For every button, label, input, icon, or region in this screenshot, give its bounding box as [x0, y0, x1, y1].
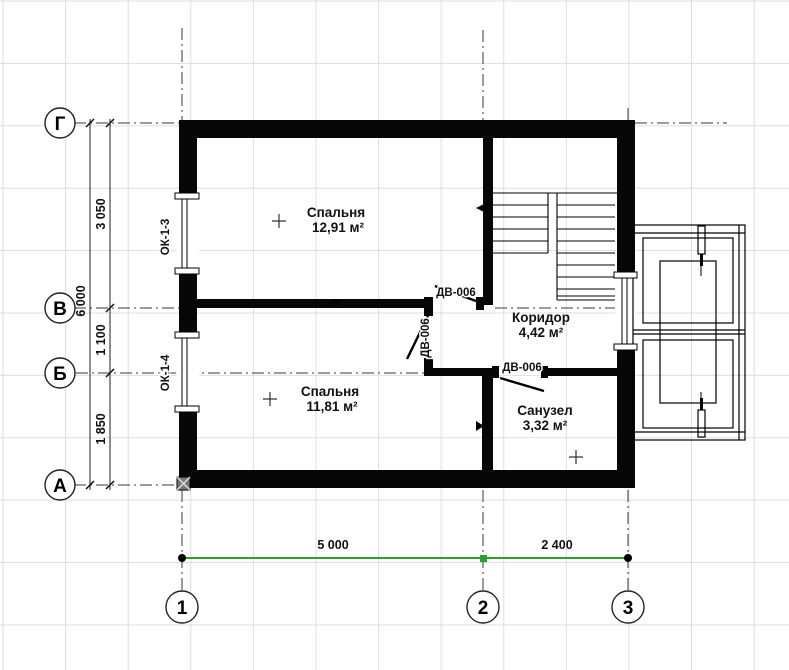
room-label-bedroom-2[interactable]: Спальня 11,81 м²: [301, 384, 359, 414]
window-gap-1: [177, 193, 199, 274]
room-name[interactable]: Спальня: [307, 205, 365, 220]
dim-bottom-seg-1[interactable]: 5 000: [317, 538, 348, 552]
room-label-corridor[interactable]: Коридор 4,42 м²: [512, 310, 570, 340]
door-tag-bedroom1[interactable]: ДВ-006: [436, 287, 476, 299]
door-tag-bathroom[interactable]: ДВ-006: [502, 362, 542, 374]
dim-grip[interactable]: [178, 554, 186, 562]
roof-window-bottom[interactable]: [643, 340, 733, 428]
door-tag-bedroom2[interactable]: ДВ-006: [420, 318, 432, 358]
dim-total-left[interactable]: 6 000: [74, 285, 88, 316]
bubble-row-a-label: А: [53, 476, 67, 497]
room-area[interactable]: 4,42 м²: [519, 325, 564, 340]
staircase[interactable]: [476, 193, 617, 300]
room-area[interactable]: 12,91 м²: [312, 220, 365, 235]
wall-north[interactable]: [179, 120, 635, 138]
bubble-row-b-label: Б: [53, 364, 67, 385]
bubble-col-3-label: 3: [623, 598, 634, 619]
dim-left-seg-1[interactable]: 3 050: [94, 198, 108, 229]
bottom-dimension-selected[interactable]: 5 000 2 400: [178, 538, 632, 562]
bubble-col-2-label: 2: [478, 598, 489, 619]
dim-grip[interactable]: [624, 554, 632, 562]
window-tag-ok-1-3[interactable]: ОК-1-3: [160, 219, 172, 255]
floor-plan-svg: 6 000 3 050 1 100 1 850: [0, 0, 789, 670]
room-name[interactable]: Коридор: [512, 310, 570, 325]
room-area[interactable]: 3,32 м²: [523, 418, 568, 433]
roof-window-top[interactable]: [643, 238, 733, 323]
corner-hatch-marker: [177, 477, 190, 490]
wall-corridor-south[interactable]: [424, 368, 498, 376]
wall-bathroom-north[interactable]: [546, 368, 617, 376]
drawing-canvas: 6 000 3 050 1 100 1 850: [0, 0, 789, 670]
bubble-col-1-label: 1: [177, 598, 188, 619]
bubble-row-g-label: Г: [55, 114, 66, 135]
room-label-bedroom-1[interactable]: Спальня 12,91 м²: [307, 205, 365, 235]
door-jamb: [424, 297, 433, 316]
wall-south[interactable]: [179, 470, 635, 488]
wall-west[interactable]: [179, 120, 197, 488]
door-jamb: [424, 358, 433, 368]
window-gap-2: [177, 332, 199, 412]
room-area[interactable]: 11,81 м²: [306, 399, 358, 414]
roof-windows[interactable]: [633, 225, 745, 440]
bubble-row-v-label: В: [53, 299, 67, 320]
window-gap-3: [615, 272, 637, 350]
door-leaf-bathroom[interactable]: [500, 378, 544, 391]
door-jamb: [476, 297, 484, 310]
room-name[interactable]: Санузел: [517, 403, 573, 418]
wall-bedroom1-south[interactable]: [197, 299, 424, 308]
window-handle-icon: [698, 392, 705, 437]
dim-grip-mid[interactable]: [480, 555, 487, 562]
room-name[interactable]: Спальня: [301, 384, 359, 399]
dim-bottom-seg-2[interactable]: 2 400: [541, 538, 572, 552]
dim-left-seg-2[interactable]: 1 100: [94, 324, 108, 355]
dim-left-seg-3[interactable]: 1 850: [94, 413, 108, 444]
roof-window-shaft: [660, 261, 716, 403]
room-label-bathroom[interactable]: Санузел 3,32 м²: [517, 403, 573, 433]
stair-direction-arrow: [476, 202, 488, 214]
door-jamb: [492, 366, 499, 378]
wall-bedroom1-east[interactable]: [483, 138, 493, 305]
wall-bathroom-west[interactable]: [482, 375, 493, 470]
window-tag-ok-1-4[interactable]: ОК-1-4: [160, 354, 172, 391]
left-dimension-chain[interactable]: 6 000 3 050 1 100 1 850: [74, 119, 114, 490]
